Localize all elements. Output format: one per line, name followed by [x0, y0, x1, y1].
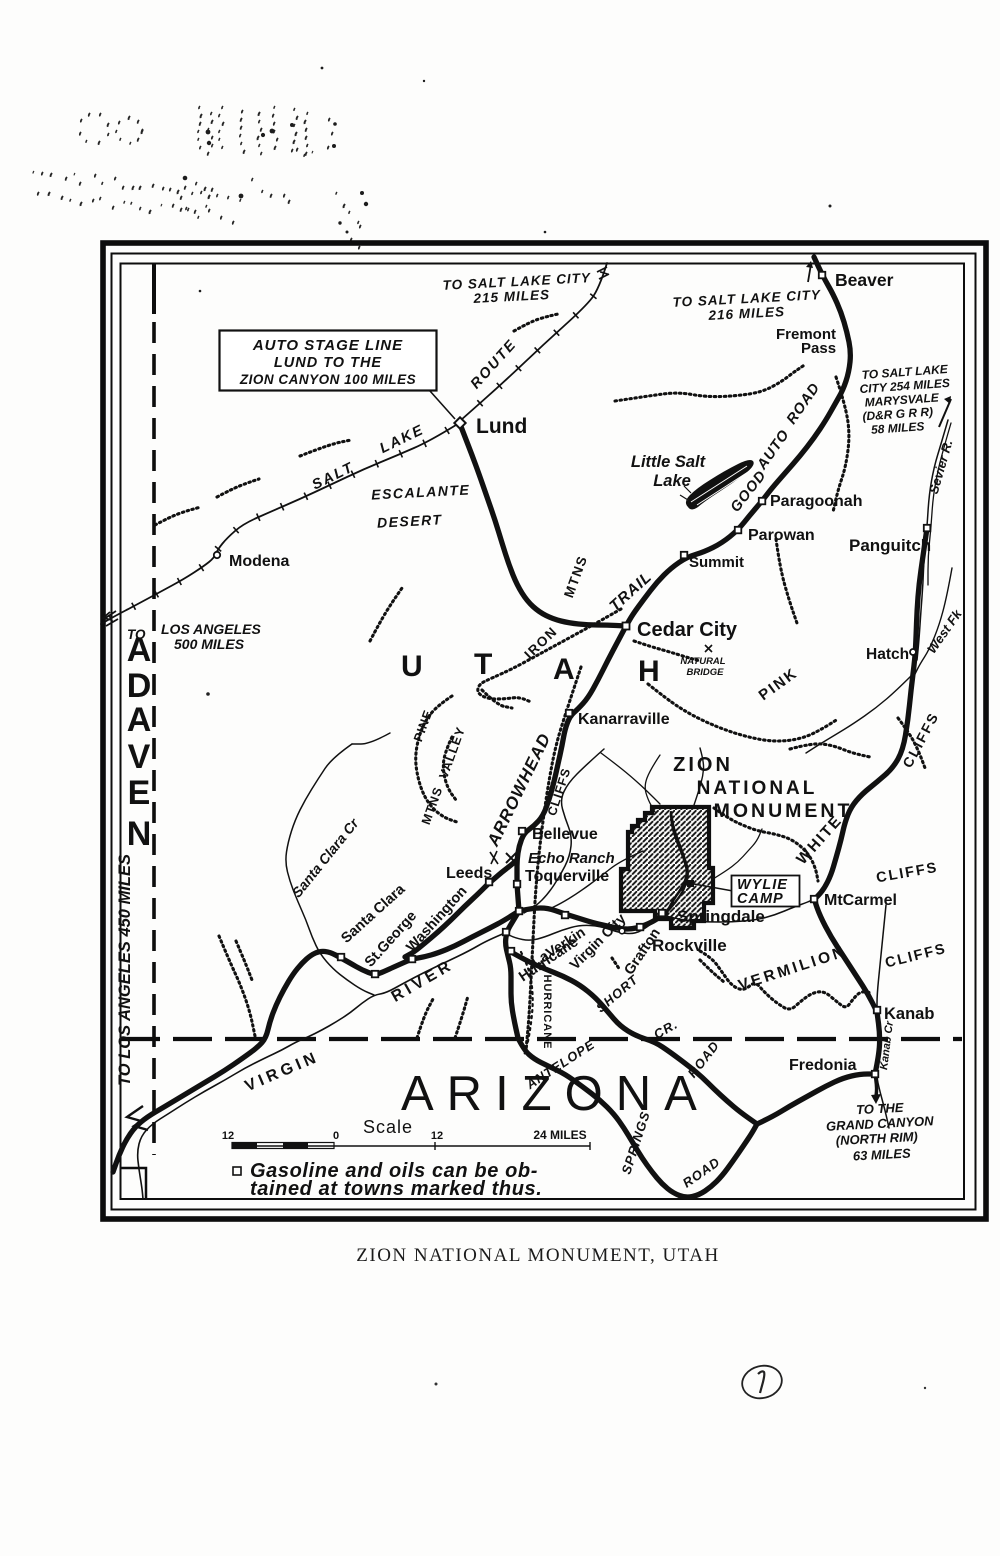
svg-text:AUTO STAGE LINE: AUTO STAGE LINE: [252, 337, 403, 354]
svg-text:Beaver: Beaver: [835, 270, 894, 290]
svg-text:12: 12: [222, 1130, 234, 1142]
svg-text:Kanarraville: Kanarraville: [578, 711, 670, 728]
svg-text:NATIONAL: NATIONAL: [697, 778, 818, 799]
svg-text:Lund: Lund: [476, 415, 527, 438]
svg-text:E: E: [128, 774, 151, 812]
svg-text:A: A: [127, 701, 152, 739]
svg-text:Echo Ranch: Echo Ranch: [528, 850, 615, 867]
svg-text:Springdale: Springdale: [677, 907, 765, 926]
svg-text:CAMP: CAMP: [737, 891, 784, 907]
svg-text:Paragoonah: Paragoonah: [770, 493, 862, 510]
svg-text:Lake: Lake: [653, 472, 691, 490]
svg-text:MtCarmel: MtCarmel: [824, 892, 897, 909]
svg-text:LUND TO THE: LUND TO THE: [274, 355, 383, 371]
svg-text:Parowan: Parowan: [748, 527, 815, 544]
svg-text:12: 12: [431, 1130, 443, 1142]
svg-text:Pass: Pass: [801, 340, 836, 357]
svg-text:BRIDGE: BRIDGE: [687, 667, 725, 678]
svg-text:N: N: [127, 815, 152, 853]
svg-text:Summit: Summit: [689, 554, 744, 571]
svg-text:TO LOS ANGELES 450 MILES: TO LOS ANGELES 450 MILES: [116, 854, 134, 1086]
svg-text:Hatch: Hatch: [866, 646, 909, 663]
svg-text:Cedar City: Cedar City: [637, 619, 738, 641]
svg-text:T: T: [474, 648, 492, 681]
svg-text:DESERT: DESERT: [377, 511, 443, 530]
svg-text:63 MILES: 63 MILES: [853, 1145, 912, 1163]
svg-text:0: 0: [333, 1130, 339, 1142]
svg-text:24 MILES: 24 MILES: [533, 1128, 586, 1142]
svg-text:H: H: [638, 655, 660, 688]
svg-text:A: A: [127, 631, 152, 669]
svg-text:Scale: Scale: [363, 1117, 413, 1137]
svg-text:Panguitch: Panguitch: [849, 536, 931, 555]
svg-text:Bellevue: Bellevue: [532, 826, 598, 843]
svg-text:Little Salt: Little Salt: [631, 453, 707, 471]
svg-text:Rockville: Rockville: [652, 936, 727, 955]
svg-text:Toquerville: Toquerville: [525, 868, 609, 885]
svg-text:Kanab: Kanab: [884, 1005, 934, 1023]
svg-text:Leeds: Leeds: [446, 865, 492, 882]
svg-text:LOS ANGELES: LOS ANGELES: [161, 621, 261, 637]
svg-text:tained at towns marked thus.: tained at towns marked thus.: [250, 1178, 542, 1200]
svg-text:Fredonia: Fredonia: [789, 1057, 857, 1074]
svg-text:A: A: [553, 653, 575, 686]
svg-text:ZION NATIONAL MONUMENT, UTAH: ZION NATIONAL MONUMENT, UTAH: [356, 1245, 719, 1266]
svg-text:V: V: [128, 738, 151, 776]
svg-text:Modena: Modena: [229, 553, 290, 570]
svg-text:HURRICANE: HURRICANE: [541, 975, 553, 1050]
svg-text:ZION: ZION: [673, 754, 733, 776]
svg-text:500 MILES: 500 MILES: [174, 636, 245, 652]
svg-text:ZION CANYON 100 MILES: ZION CANYON 100 MILES: [239, 372, 416, 387]
svg-text:D: D: [127, 667, 152, 705]
svg-text:U: U: [401, 650, 423, 683]
svg-text:NATURAL: NATURAL: [680, 656, 725, 667]
